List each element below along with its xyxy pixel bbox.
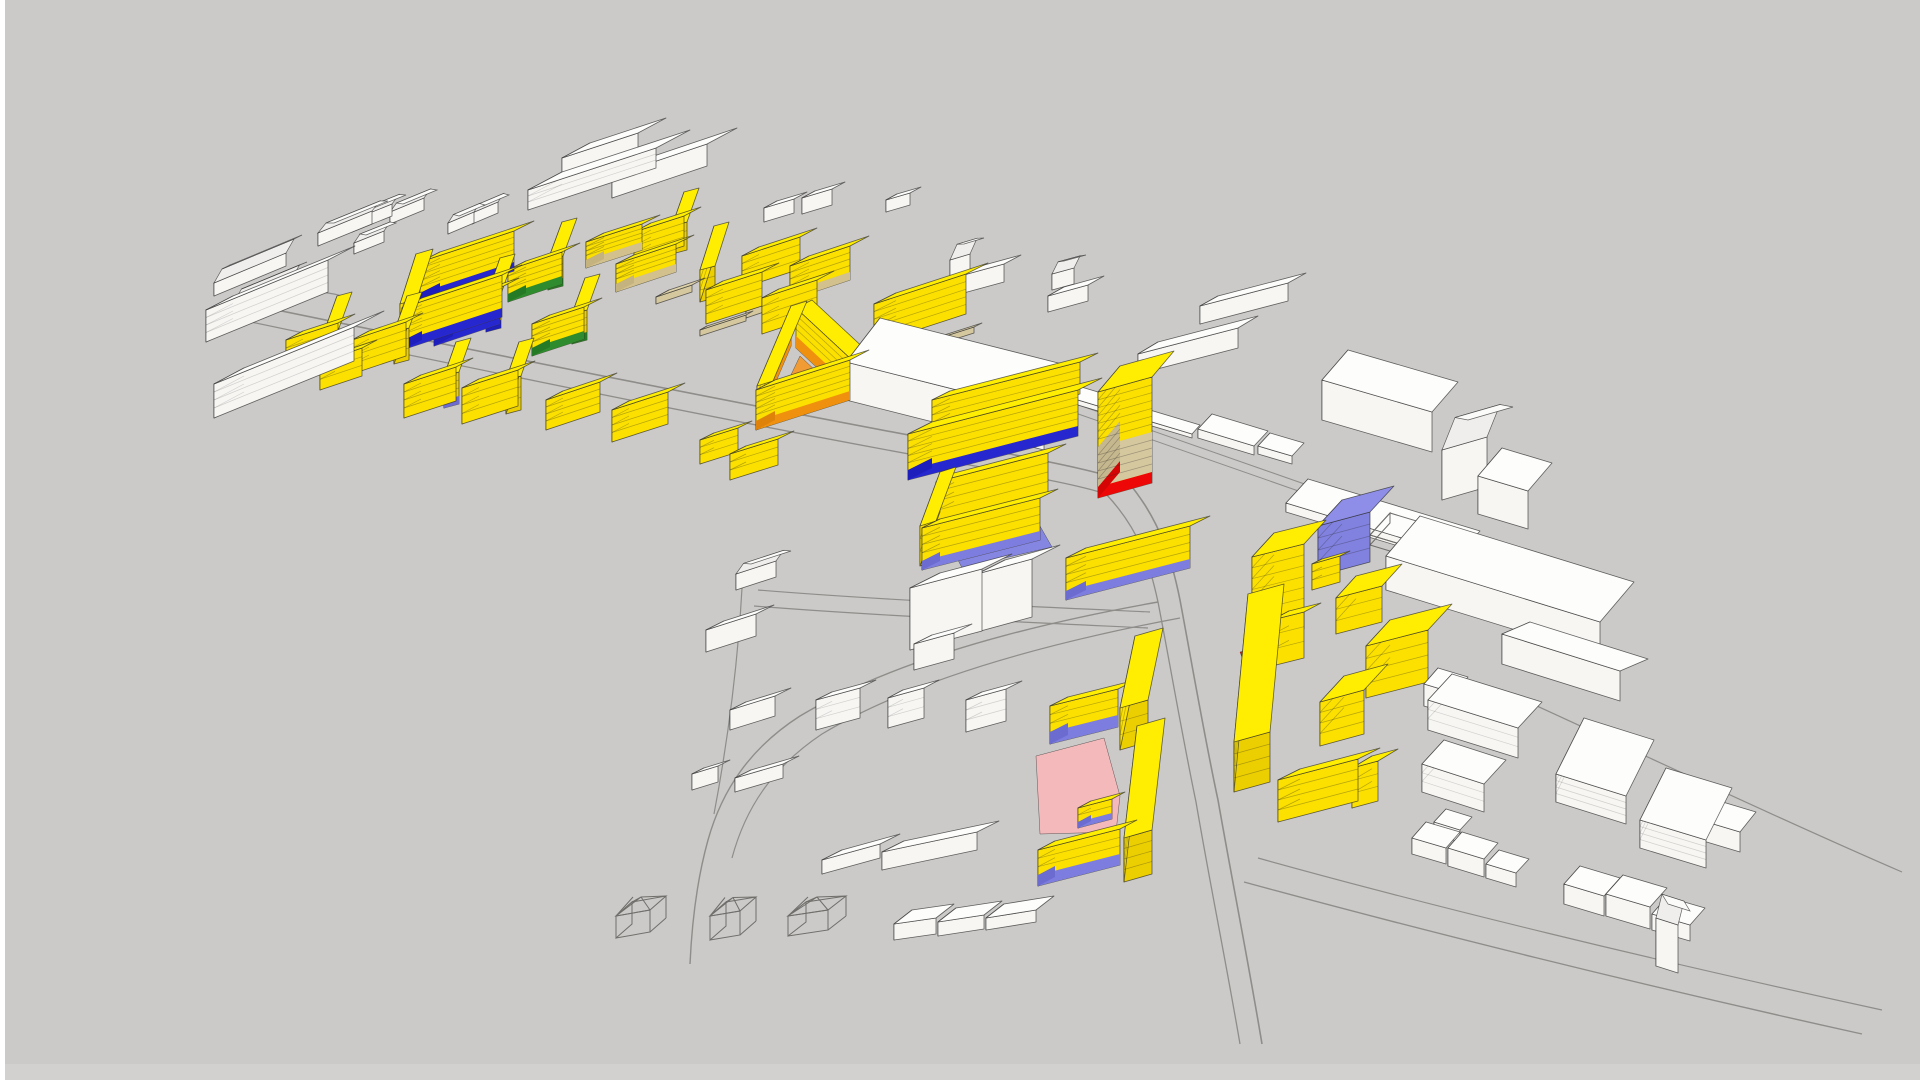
massing-model-canvas[interactable] <box>0 0 1920 1080</box>
bottom-edge-strip <box>0 1064 1920 1080</box>
left-margin <box>0 0 5 1080</box>
model-viewport[interactable] <box>0 0 1920 1080</box>
